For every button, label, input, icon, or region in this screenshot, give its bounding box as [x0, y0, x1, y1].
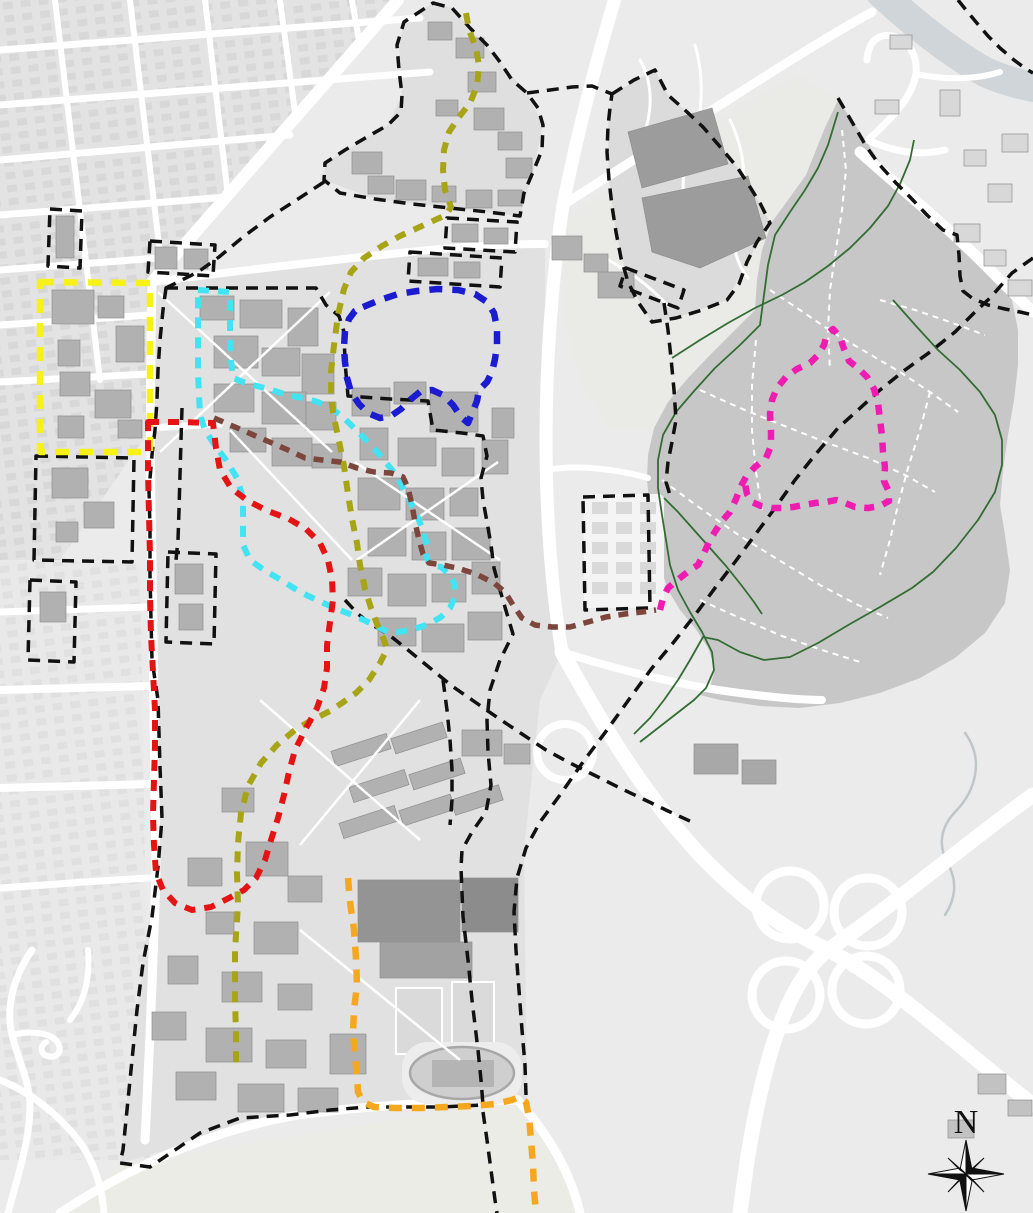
buildings-layer-shape: [288, 876, 322, 902]
buildings-layer-shape: [222, 788, 254, 812]
buildings-layer-shape: [988, 184, 1012, 202]
fields-layer-shape-shape: [616, 582, 632, 594]
buildings-layer-shape: [398, 438, 436, 466]
buildings-layer-shape: [84, 502, 114, 528]
buildings-layer-shape: [492, 408, 514, 438]
buildings-layer-shape: [52, 290, 94, 324]
buildings-layer-shape: [152, 1012, 186, 1040]
buildings-layer-shape: [432, 574, 466, 602]
buildings-layer-shape: [206, 912, 234, 934]
buildings-layer-shape: [60, 372, 90, 396]
buildings-layer-shape: [52, 468, 88, 498]
buildings-layer-shape: [175, 564, 203, 594]
buildings-layer-shape: [368, 528, 406, 556]
buildings-layer-shape: [422, 624, 464, 652]
fields-layer-shape-shape: [592, 502, 608, 514]
buildings-layer-shape: [240, 300, 282, 328]
fields-layer-shape-shape: [592, 522, 608, 534]
fields-layer-shape-shape: [616, 522, 632, 534]
buildings-layer-shape: [358, 478, 400, 510]
buildings-layer-shape: [40, 592, 66, 622]
buildings-layer-shape: [266, 1040, 306, 1068]
buildings-layer-shape: [95, 390, 131, 418]
buildings-layer-shape: [330, 1034, 366, 1074]
buildings-layer-shape: [462, 730, 502, 756]
buildings-layer-shape: [468, 72, 496, 92]
buildings-layer-shape: [206, 1028, 252, 1062]
track-infield: [432, 1060, 494, 1087]
compass-north-label: N: [954, 1104, 979, 1141]
buildings-layer-shape: [452, 224, 478, 242]
buildings-layer-shape: [584, 254, 608, 272]
buildings-layer-shape: [468, 612, 502, 640]
buildings-layer-shape: [984, 250, 1006, 266]
buildings-layer-shape: [58, 416, 84, 438]
roads-layer-shape: [0, 784, 152, 788]
buildings-layer-shape: [466, 190, 492, 208]
buildings-layer-shape: [1002, 134, 1028, 152]
buildings-layer-shape: [278, 984, 312, 1010]
buildings-layer-shape: [964, 150, 986, 166]
south-complex: [358, 880, 460, 942]
buildings-layer-shape: [56, 522, 78, 542]
fields-layer-shape-shape: [592, 582, 608, 594]
buildings-layer-shape: [890, 35, 912, 49]
buildings-layer-shape: [116, 326, 144, 362]
buildings-layer-shape: [418, 258, 448, 276]
buildings-layer-shape: [442, 448, 474, 476]
buildings-layer-shape: [272, 438, 312, 466]
buildings-layer-shape: [506, 158, 532, 178]
buildings-layer-shape: [1008, 280, 1032, 296]
buildings-layer-shape: [1008, 1100, 1032, 1116]
buildings-layer-shape: [176, 1072, 216, 1100]
buildings-layer-shape: [462, 878, 518, 932]
map-canvas: N: [0, 0, 1033, 1213]
buildings-layer-shape: [552, 236, 582, 260]
fields-layer-shape-shape: [616, 542, 632, 554]
buildings-layer-shape: [498, 190, 522, 206]
fields-layer-shape-shape: [616, 562, 632, 574]
buildings-layer-shape: [484, 228, 508, 244]
buildings-layer-shape: [428, 22, 452, 40]
buildings-layer-shape: [742, 760, 776, 784]
buildings-layer-shape: [474, 108, 504, 130]
buildings-layer-shape: [940, 90, 960, 116]
fields-layer-shape-shape: [592, 542, 608, 554]
buildings-layer-shape: [380, 942, 472, 978]
buildings-layer-shape: [179, 604, 203, 630]
buildings-layer-shape: [454, 262, 480, 278]
buildings-layer-shape: [214, 384, 254, 412]
buildings-layer-shape: [598, 272, 634, 298]
buildings-layer-shape: [188, 858, 222, 886]
buildings-layer-shape: [98, 296, 124, 318]
roads-layer-shape: [0, 686, 150, 690]
buildings-layer-shape: [978, 1074, 1006, 1094]
buildings-layer-shape: [396, 180, 426, 200]
buildings-layer-shape: [388, 574, 426, 606]
buildings-layer-shape: [875, 100, 899, 114]
buildings-layer-shape: [254, 922, 298, 954]
buildings-layer-shape: [155, 247, 177, 269]
buildings-layer-shape: [222, 972, 262, 1002]
buildings-layer-shape: [56, 216, 74, 258]
buildings-layer-shape: [58, 340, 80, 366]
buildings-layer-shape: [168, 956, 198, 984]
buildings-layer-shape: [352, 152, 382, 174]
fields-layer-shape-shape: [616, 502, 632, 514]
buildings-layer-shape: [436, 100, 458, 116]
buildings-layer-shape: [368, 176, 394, 194]
buildings-layer-shape: [694, 744, 738, 774]
buildings-layer-shape: [238, 1084, 284, 1112]
fields-layer-shape-shape: [592, 562, 608, 574]
buildings-layer-shape: [504, 744, 530, 764]
campus-map: N: [0, 0, 1033, 1213]
buildings-layer-shape: [118, 420, 142, 438]
buildings-layer-shape: [360, 428, 388, 460]
buildings-layer-shape: [498, 132, 522, 150]
